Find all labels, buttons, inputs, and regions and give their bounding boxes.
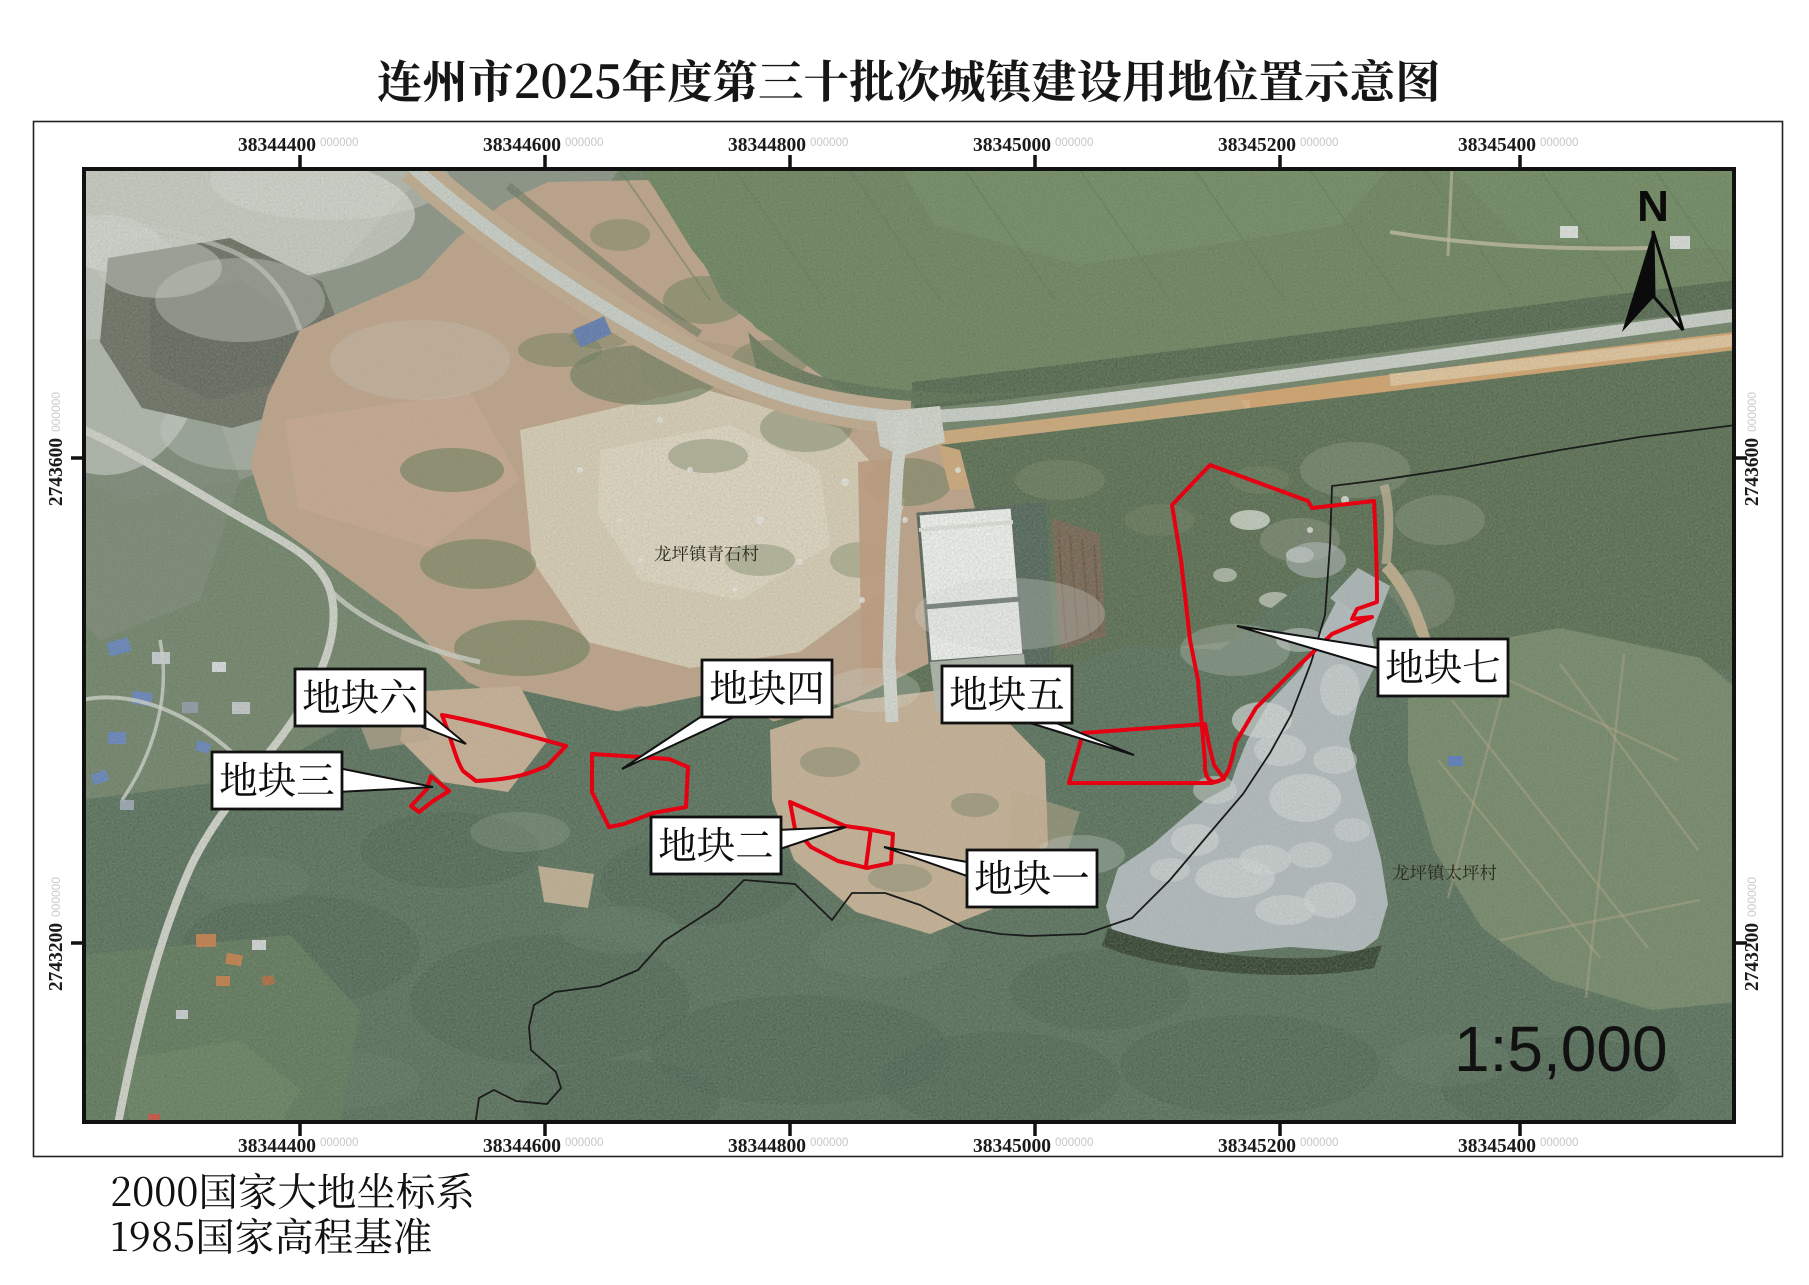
svg-text:000000: 000000 (565, 137, 603, 149)
svg-text:38345400: 38345400 (1458, 1136, 1536, 1157)
svg-text:1:5,000: 1:5,000 (1454, 1013, 1668, 1085)
svg-text:38345000: 38345000 (973, 135, 1051, 156)
svg-text:000000: 000000 (1540, 1137, 1578, 1149)
svg-text:000000: 000000 (810, 137, 848, 149)
svg-text:000000: 000000 (1540, 137, 1578, 149)
svg-text:38344600: 38344600 (483, 1136, 561, 1157)
svg-text:38345400: 38345400 (1458, 135, 1536, 156)
svg-text:000000: 000000 (1055, 137, 1093, 149)
svg-text:000000: 000000 (810, 1137, 848, 1149)
svg-text:000000: 000000 (1055, 1137, 1093, 1149)
svg-text:000000: 000000 (1300, 1137, 1338, 1149)
svg-text:000000: 000000 (49, 877, 63, 917)
svg-text:38344400: 38344400 (238, 135, 316, 156)
svg-text:000000: 000000 (1300, 137, 1338, 149)
svg-text:000000: 000000 (1745, 877, 1759, 917)
svg-text:2743600: 2743600 (1742, 438, 1763, 506)
svg-text:000000: 000000 (49, 392, 63, 432)
svg-text:38345200: 38345200 (1218, 1136, 1296, 1157)
svg-text:38344800: 38344800 (728, 1136, 806, 1157)
svg-text:000000: 000000 (1745, 392, 1759, 432)
svg-text:38344800: 38344800 (728, 135, 806, 156)
svg-text:38344400: 38344400 (238, 1136, 316, 1157)
svg-text:000000: 000000 (320, 1137, 358, 1149)
svg-text:2743600: 2743600 (46, 438, 67, 506)
svg-text:38345200: 38345200 (1218, 135, 1296, 156)
svg-text:38345000: 38345000 (973, 1136, 1051, 1157)
svg-text:000000: 000000 (320, 137, 358, 149)
svg-text:000000: 000000 (565, 1137, 603, 1149)
svg-text:38344600: 38344600 (483, 135, 561, 156)
svg-text:2743200: 2743200 (46, 923, 67, 991)
svg-text:2743200: 2743200 (1742, 923, 1763, 991)
svg-text:N: N (1637, 182, 1669, 231)
